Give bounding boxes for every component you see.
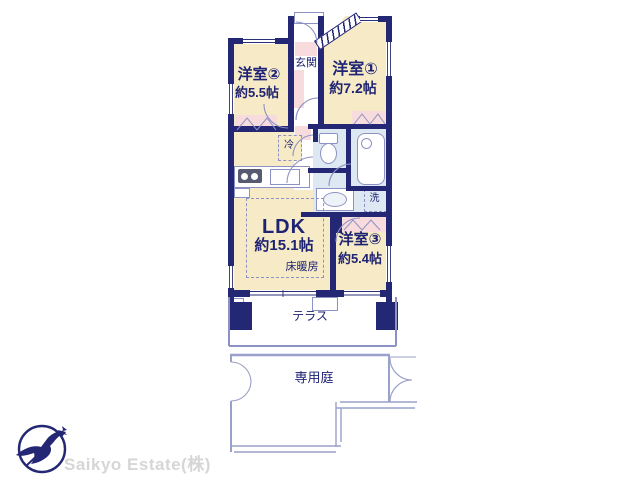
company-name-text: Saikyo Estate(株)	[64, 450, 211, 475]
label-bedroom2-name: 洋室②	[230, 67, 288, 84]
garden-gate-left-arc	[231, 362, 251, 382]
label-bedroom3-size: 約5.4帖	[330, 252, 390, 266]
label-ldk-name: LDK	[246, 216, 322, 238]
label-bedroom1-name: 洋室①	[324, 61, 386, 79]
door-arc-entrance	[296, 22, 317, 43]
garden-gate-left-arc	[231, 382, 251, 401]
closet-fold-icon	[344, 220, 380, 230]
garden-gate-right-arc	[390, 380, 412, 402]
label-refrigerator: 冷	[278, 140, 300, 151]
closet-fold-icon	[354, 114, 385, 124]
label-terrace: テラス	[288, 310, 332, 323]
garden-bottom-lines	[230, 446, 341, 452]
garden-step-lines	[336, 402, 417, 408]
label-entrance: 玄関	[294, 57, 318, 69]
label-bedroom2-size: 約5.5帖	[226, 86, 288, 100]
door-arc-bedroom1	[296, 98, 318, 120]
label-laundry: 洗	[364, 193, 385, 204]
label-bedroom1-size: 約7.2帖	[320, 81, 386, 96]
label-floor-heating: 床暖房	[280, 261, 324, 273]
door-arc-bedroom2	[264, 104, 288, 128]
garden-gate-right-arc	[390, 358, 412, 380]
company-logo-icon	[16, 426, 67, 472]
label-bedroom3-name: 洋室③	[332, 232, 388, 249]
label-garden: 専用庭	[292, 371, 336, 385]
door-arc-bathroom	[329, 164, 351, 186]
label-ldk-size: 約15.1帖	[242, 238, 326, 255]
floor-plan-canvas: 洋室② 約5.5帖 洋室① 約7.2帖 LDK 約15.1帖 床暖房 洋室③ 約…	[0, 0, 640, 480]
garden-step-vertical	[336, 402, 341, 447]
door-arc-ldk	[287, 157, 313, 183]
